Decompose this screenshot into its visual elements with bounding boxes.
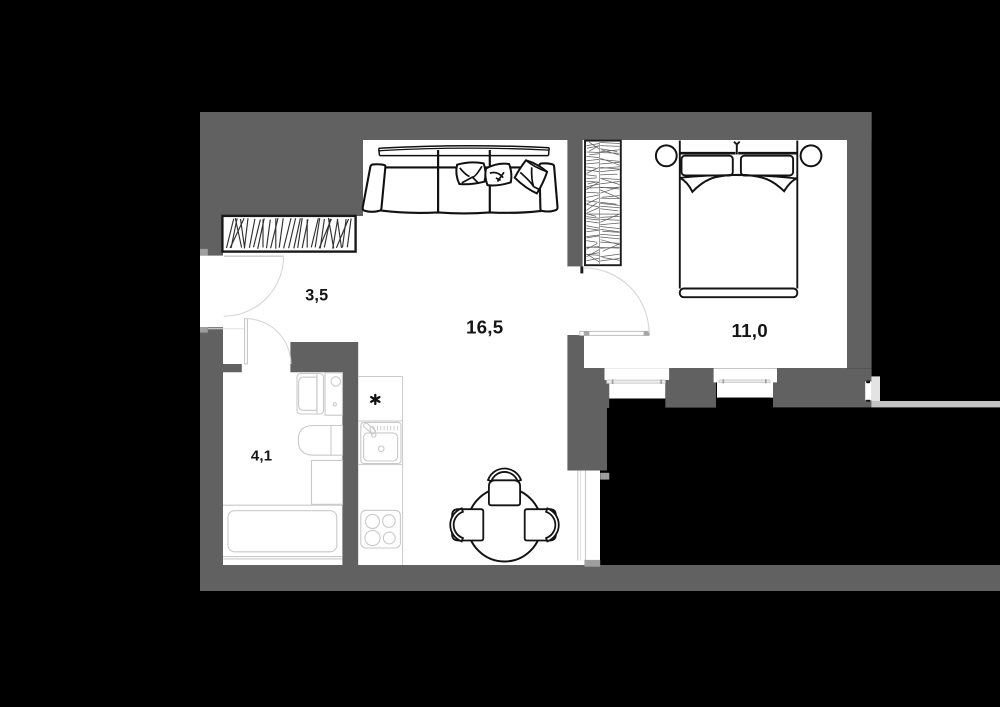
svg-text:4,1: 4,1 xyxy=(251,447,272,464)
svg-text:16,5: 16,5 xyxy=(466,317,503,338)
svg-text:3,5: 3,5 xyxy=(305,286,328,304)
svg-text:11,0: 11,0 xyxy=(732,320,768,341)
